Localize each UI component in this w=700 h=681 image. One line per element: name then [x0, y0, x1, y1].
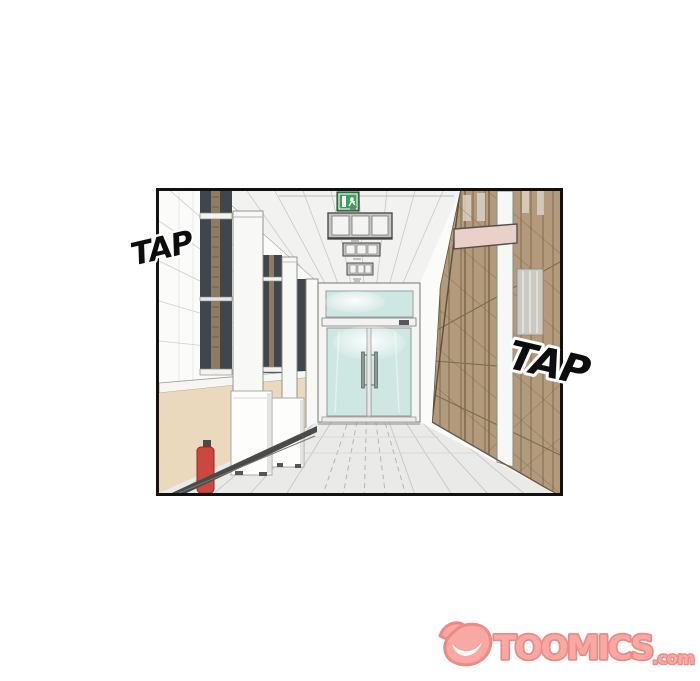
storage-box	[272, 398, 304, 468]
glass-double-door	[318, 283, 420, 424]
toomics-brand-text: TOOMICS	[494, 628, 653, 667]
toomics-watermark: TOOMICS .com	[438, 618, 698, 674]
door-handle-left[interactable]	[362, 352, 365, 388]
comic-panel[interactable]	[156, 188, 563, 496]
door-handle-right[interactable]	[375, 352, 378, 388]
door-closer-box	[399, 320, 409, 325]
toomics-tld-text: .com	[652, 649, 694, 669]
exit-sign-icon	[337, 192, 359, 211]
hallway-scene	[159, 191, 560, 493]
comic-viewer-page: TAP TAP TOOMICS .com	[0, 0, 700, 681]
toomics-logo-icon	[440, 623, 491, 665]
